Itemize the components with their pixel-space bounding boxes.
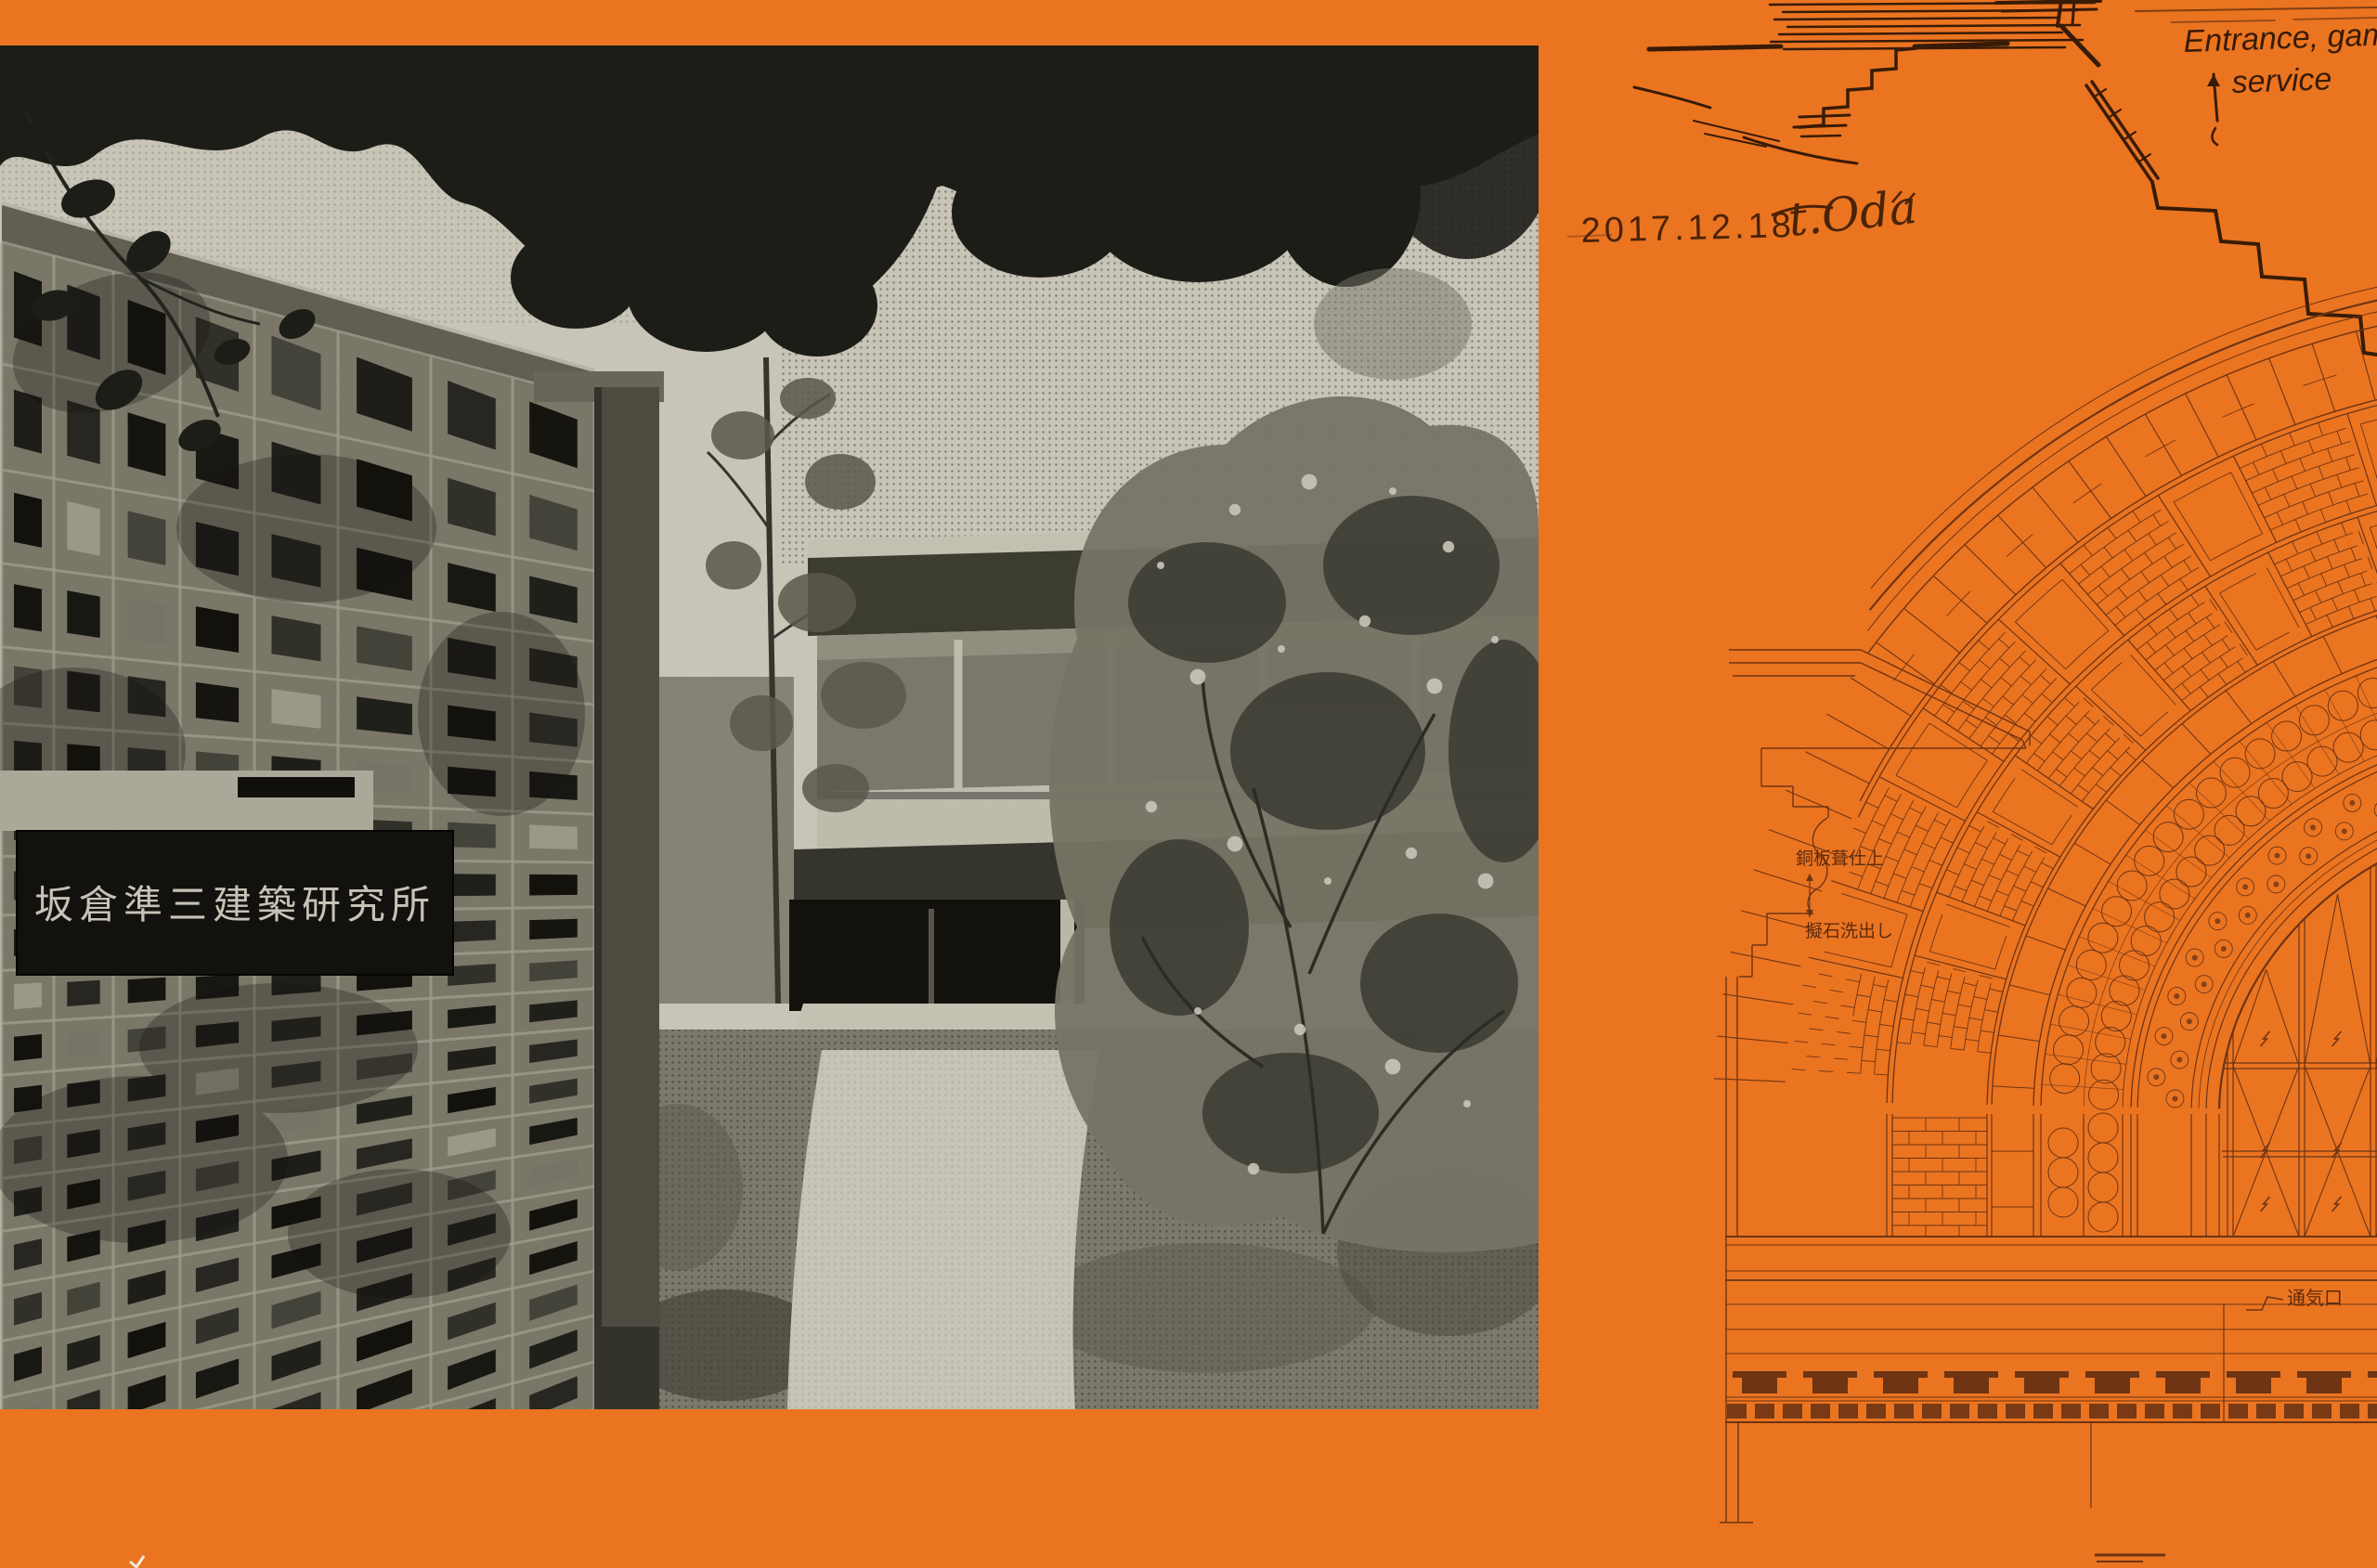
- label-vent: 通気口: [2287, 1288, 2343, 1309]
- signature-text: t.Oda: [1786, 180, 1919, 247]
- bottom-edge-mark: [130, 1556, 144, 1567]
- note-text-line1: Entrance, game: [2183, 17, 2377, 59]
- label-cast-stone: 擬石洗出し: [1805, 921, 1893, 941]
- poster-canvas: 坂倉準三建築研究所: [0, 0, 2377, 1568]
- date-signature: 2017.12.18 t.Oda: [1567, 180, 1919, 251]
- note-text-line2: service: [2231, 61, 2332, 100]
- ink-overlay: Entrance, game service 2017.12.18 t.Oda: [0, 0, 2377, 1568]
- date-text: 2017.12.18: [1580, 206, 1795, 251]
- label-copper-roof: 銅板葺仕上: [1796, 849, 1884, 869]
